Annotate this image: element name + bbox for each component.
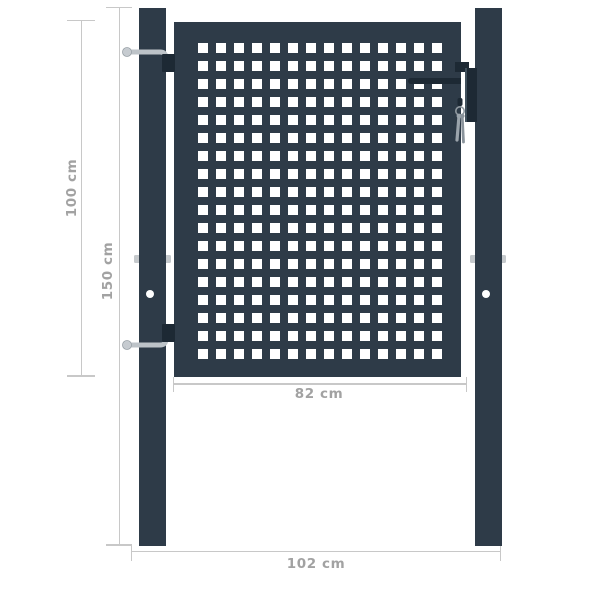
perforation-hole	[378, 259, 388, 269]
perforation-hole	[432, 313, 442, 323]
perforation-hole	[234, 277, 244, 287]
perforation-hole	[252, 331, 262, 341]
perforation-hole	[252, 133, 262, 143]
perforation-hole	[414, 259, 424, 269]
perforation-hole	[234, 61, 244, 71]
perforation-hole	[198, 169, 208, 179]
perforation-hole	[432, 133, 442, 143]
perforation-hole	[432, 223, 442, 233]
top-hinge-icon	[118, 42, 180, 76]
perforation-hole	[414, 295, 424, 305]
perforation-hole	[414, 331, 424, 341]
perforation-hole	[198, 295, 208, 305]
perforation-hole	[396, 295, 406, 305]
perforation-hole	[396, 79, 406, 89]
perforation-hole	[216, 79, 226, 89]
perforation-hole	[396, 259, 406, 269]
dim-leaf-width-tick-right	[466, 377, 468, 392]
perforation-hole	[216, 313, 226, 323]
perforation-hole	[216, 133, 226, 143]
perforation-hole	[396, 313, 406, 323]
perforation-hole	[360, 331, 370, 341]
perforation-hole	[342, 79, 352, 89]
gate-leaf	[174, 22, 461, 377]
perforation-hole	[342, 277, 352, 287]
perforation-hole	[288, 151, 298, 161]
perforation-hole	[198, 349, 208, 359]
perforation-hole	[198, 43, 208, 53]
perforation-hole	[432, 169, 442, 179]
perforation-hole	[342, 331, 352, 341]
perforation-hole	[288, 241, 298, 251]
dim-leaf-width-line	[173, 383, 466, 385]
perforation-hole	[324, 43, 334, 53]
perforation-hole	[216, 259, 226, 269]
perforation-hole	[396, 277, 406, 287]
perforation-hole	[396, 97, 406, 107]
perforation-hole	[324, 115, 334, 125]
perforation-hole	[414, 133, 424, 143]
perforation-hole	[324, 259, 334, 269]
perforation-hole	[306, 331, 316, 341]
perforation-hole	[378, 331, 388, 341]
perforation-hole	[324, 313, 334, 323]
perforation-hole	[252, 169, 262, 179]
perforation-hole	[216, 187, 226, 197]
perforation-hole	[234, 331, 244, 341]
perforation-hole	[288, 61, 298, 71]
perforation-hole	[252, 223, 262, 233]
perforation-hole	[378, 223, 388, 233]
perforation-hole	[396, 241, 406, 251]
perforation-hole	[216, 277, 226, 287]
perforation-hole	[324, 79, 334, 89]
perforation-hole	[216, 349, 226, 359]
perforation-hole	[396, 205, 406, 215]
perforation-hole	[198, 115, 208, 125]
perforation-hole	[396, 115, 406, 125]
perforation-hole	[324, 241, 334, 251]
perforation-hole	[378, 97, 388, 107]
perforation-hole	[324, 169, 334, 179]
perforation-hole	[306, 133, 316, 143]
perforation-hole	[432, 115, 442, 125]
perforation-hole	[306, 43, 316, 53]
perforation-hole	[432, 295, 442, 305]
post-bolt-hole	[146, 290, 154, 298]
perforation-hole	[324, 331, 334, 341]
dim-overall-width-line	[131, 551, 500, 553]
perforation-hole	[216, 223, 226, 233]
perforation-hole	[432, 187, 442, 197]
perforation-hole	[342, 187, 352, 197]
perforation-hole	[216, 205, 226, 215]
perforation-hole	[270, 187, 280, 197]
perforation-hole	[342, 97, 352, 107]
perforation-hole	[216, 61, 226, 71]
perforation-hole	[216, 151, 226, 161]
perforation-hole	[270, 151, 280, 161]
perforation-hole	[288, 205, 298, 215]
perforation-hole	[342, 151, 352, 161]
perforation-hole	[342, 43, 352, 53]
perforation-hole	[342, 223, 352, 233]
left-post	[139, 8, 166, 546]
perforation-hole	[306, 223, 316, 233]
perforation-hole	[342, 349, 352, 359]
perforation-hole	[396, 331, 406, 341]
perforation-hole	[306, 205, 316, 215]
perforation-hole	[306, 115, 316, 125]
perforation-hole	[414, 43, 424, 53]
perforation-hole	[360, 259, 370, 269]
perforation-hole	[414, 223, 424, 233]
perforation-hole	[270, 205, 280, 215]
perforation-hole	[414, 97, 424, 107]
perforation-hole	[432, 151, 442, 161]
perforation-hole	[234, 259, 244, 269]
perforation-hole	[378, 349, 388, 359]
perforation-hole	[198, 313, 208, 323]
perforation-hole	[252, 187, 262, 197]
dim-gate-height-cap-bottom	[67, 375, 95, 377]
perforation-hole	[252, 259, 262, 269]
perforation-hole	[252, 151, 262, 161]
perforation-hole	[396, 223, 406, 233]
perforation-hole	[252, 205, 262, 215]
perforation-hole	[360, 79, 370, 89]
dim-post-height-cap-bottom	[106, 544, 132, 546]
dim-overall-width-tick-left	[131, 544, 133, 561]
perforation-hole	[270, 43, 280, 53]
perforation-hole	[216, 241, 226, 251]
perforation-hole	[378, 277, 388, 287]
perforation-hole	[324, 223, 334, 233]
perforation-hole	[360, 133, 370, 143]
perforation-hole	[396, 187, 406, 197]
perforation-hole	[378, 187, 388, 197]
perforation-hole	[288, 259, 298, 269]
key-icon	[457, 116, 459, 140]
perforation-hole	[360, 241, 370, 251]
perforation-hole	[360, 313, 370, 323]
perforation-hole	[414, 61, 424, 71]
perforation-hole	[360, 61, 370, 71]
perforation-hole	[378, 295, 388, 305]
perforation-hole	[396, 349, 406, 359]
perforation-hole	[252, 313, 262, 323]
perforation-hole	[306, 97, 316, 107]
perforation-hole	[396, 169, 406, 179]
dim-gate-height-cap-top	[67, 20, 95, 22]
key-hook	[458, 98, 463, 106]
perforation-hole	[252, 349, 262, 359]
dim-overall-width-label: 102 cm	[287, 556, 346, 572]
perforation-hole	[432, 61, 442, 71]
perforation-hole	[288, 277, 298, 287]
perforation-hole	[414, 277, 424, 287]
perforation-hole	[378, 151, 388, 161]
perforation-hole	[234, 295, 244, 305]
perforation-hole	[288, 133, 298, 143]
perforation-hole	[270, 169, 280, 179]
perforation-hole	[198, 331, 208, 341]
perforation-hole	[234, 43, 244, 53]
perforation-hole	[360, 97, 370, 107]
perforation-hole	[360, 205, 370, 215]
perforation-hole	[288, 97, 298, 107]
key-icon	[462, 116, 463, 142]
perforation-hole	[288, 349, 298, 359]
dim-leaf-width-label: 82 cm	[295, 386, 344, 402]
perforation-hole	[378, 133, 388, 143]
dim-gate-height-line	[81, 20, 83, 376]
perforation-grid	[198, 43, 442, 359]
perforation-hole	[378, 205, 388, 215]
perforation-hole	[198, 187, 208, 197]
perforation-hole	[306, 79, 316, 89]
perforation-hole	[270, 79, 280, 89]
perforation-hole	[432, 259, 442, 269]
perforation-hole	[414, 151, 424, 161]
perforation-hole	[324, 349, 334, 359]
perforation-hole	[360, 277, 370, 287]
perforation-hole	[414, 115, 424, 125]
perforation-hole	[234, 133, 244, 143]
perforation-hole	[342, 61, 352, 71]
perforation-hole	[360, 151, 370, 161]
perforation-hole	[432, 97, 442, 107]
perforation-hole	[198, 79, 208, 89]
perforation-hole	[252, 43, 262, 53]
perforation-hole	[270, 259, 280, 269]
perforation-hole	[270, 133, 280, 143]
perforation-hole	[270, 223, 280, 233]
perforation-hole	[324, 187, 334, 197]
perforation-hole	[234, 223, 244, 233]
perforation-hole	[252, 295, 262, 305]
perforation-hole	[414, 313, 424, 323]
perforation-hole	[198, 259, 208, 269]
perforation-hole	[342, 241, 352, 251]
perforation-hole	[234, 349, 244, 359]
perforation-hole	[378, 313, 388, 323]
perforation-hole	[198, 223, 208, 233]
perforation-hole	[270, 115, 280, 125]
perforation-hole	[288, 313, 298, 323]
perforation-hole	[360, 223, 370, 233]
perforation-hole	[324, 151, 334, 161]
perforation-hole	[360, 349, 370, 359]
perforation-hole	[252, 61, 262, 71]
perforation-hole	[324, 277, 334, 287]
perforation-hole	[324, 61, 334, 71]
perforation-hole	[414, 349, 424, 359]
perforation-hole	[252, 79, 262, 89]
perforation-hole	[342, 115, 352, 125]
perforation-hole	[198, 61, 208, 71]
perforation-hole	[216, 97, 226, 107]
perforation-hole	[252, 241, 262, 251]
perforation-hole	[432, 205, 442, 215]
perforation-hole	[288, 79, 298, 89]
perforation-hole	[234, 97, 244, 107]
perforation-hole	[288, 331, 298, 341]
perforation-hole	[270, 295, 280, 305]
perforation-hole	[378, 61, 388, 71]
perforation-hole	[396, 61, 406, 71]
perforation-hole	[342, 205, 352, 215]
perforation-hole	[306, 277, 316, 287]
gate-dimension-diagram: 100 cm 150 cm 82 cm 102 cm	[0, 0, 600, 600]
perforation-hole	[378, 43, 388, 53]
perforation-hole	[414, 205, 424, 215]
perforation-hole	[288, 223, 298, 233]
perforation-hole	[360, 187, 370, 197]
perforation-hole	[270, 331, 280, 341]
perforation-hole	[270, 349, 280, 359]
perforation-hole	[216, 43, 226, 53]
perforation-hole	[360, 115, 370, 125]
perforation-hole	[198, 133, 208, 143]
perforation-hole	[252, 97, 262, 107]
perforation-hole	[306, 169, 316, 179]
perforation-hole	[414, 187, 424, 197]
perforation-hole	[198, 241, 208, 251]
perforation-hole	[306, 241, 316, 251]
perforation-hole	[234, 205, 244, 215]
perforation-hole	[396, 43, 406, 53]
dim-gate-height-label: 100 cm	[64, 159, 80, 218]
perforation-hole	[234, 79, 244, 89]
perforation-hole	[234, 151, 244, 161]
perforation-hole	[306, 295, 316, 305]
perforation-hole	[432, 43, 442, 53]
lock-assembly	[450, 56, 484, 148]
perforation-hole	[342, 313, 352, 323]
perforation-hole	[378, 169, 388, 179]
perforation-hole	[306, 259, 316, 269]
bottom-hinge-icon	[118, 316, 180, 350]
perforation-hole	[288, 43, 298, 53]
perforation-hole	[270, 97, 280, 107]
perforation-hole	[252, 115, 262, 125]
perforation-hole	[270, 277, 280, 287]
perforation-hole	[306, 187, 316, 197]
perforation-hole	[432, 349, 442, 359]
perforation-hole	[234, 241, 244, 251]
perforation-hole	[288, 115, 298, 125]
perforation-hole	[324, 205, 334, 215]
perforation-hole	[216, 169, 226, 179]
perforation-hole	[360, 169, 370, 179]
perforation-hole	[306, 61, 316, 71]
perforation-hole	[432, 277, 442, 287]
dim-post-height-cap-top	[106, 7, 132, 9]
perforation-hole	[270, 241, 280, 251]
perforation-hole	[306, 313, 316, 323]
perforation-hole	[198, 205, 208, 215]
perforation-hole	[234, 115, 244, 125]
perforation-hole	[288, 187, 298, 197]
perforation-hole	[234, 313, 244, 323]
perforation-hole	[288, 295, 298, 305]
perforation-hole	[342, 295, 352, 305]
dim-post-height-label: 150 cm	[100, 242, 116, 301]
perforation-hole	[306, 151, 316, 161]
perforation-hole	[198, 97, 208, 107]
perforation-hole	[324, 97, 334, 107]
perforation-hole	[234, 187, 244, 197]
perforation-hole	[234, 169, 244, 179]
post-bolt-hole	[482, 290, 490, 298]
perforation-hole	[432, 241, 442, 251]
perforation-hole	[360, 295, 370, 305]
perforation-hole	[378, 115, 388, 125]
dim-overall-width-tick-right	[500, 544, 502, 561]
perforation-hole	[270, 61, 280, 71]
perforation-hole	[396, 151, 406, 161]
perforation-hole	[288, 169, 298, 179]
perforation-hole	[198, 151, 208, 161]
perforation-hole	[216, 115, 226, 125]
perforation-hole	[396, 133, 406, 143]
dim-post-height-line	[119, 7, 121, 545]
perforation-hole	[198, 277, 208, 287]
perforation-hole	[342, 259, 352, 269]
perforation-hole	[216, 295, 226, 305]
perforation-hole	[432, 331, 442, 341]
perforation-hole	[378, 241, 388, 251]
dim-leaf-width-tick-left	[173, 377, 175, 392]
perforation-hole	[324, 295, 334, 305]
perforation-hole	[414, 241, 424, 251]
perforation-hole	[378, 79, 388, 89]
perforation-hole	[306, 349, 316, 359]
perforation-hole	[216, 331, 226, 341]
perforation-hole	[270, 313, 280, 323]
perforation-hole	[342, 133, 352, 143]
perforation-hole	[414, 169, 424, 179]
perforation-hole	[360, 43, 370, 53]
perforation-hole	[252, 277, 262, 287]
perforation-hole	[324, 133, 334, 143]
perforation-hole	[342, 169, 352, 179]
